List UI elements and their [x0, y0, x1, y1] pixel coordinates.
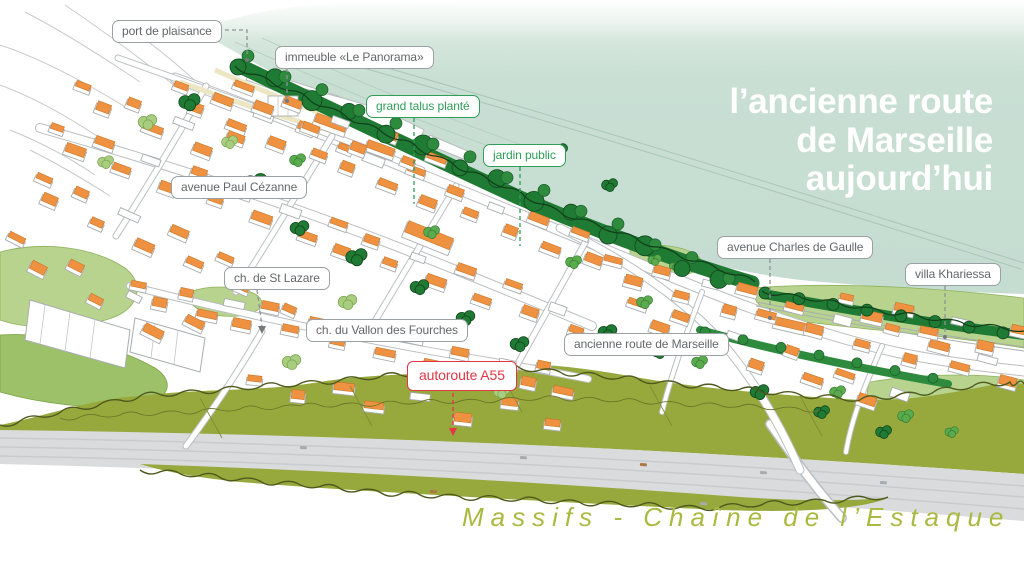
- label-ancienne-route-de-marseille: ancienne route de Marseille: [564, 333, 729, 356]
- title-line-2: de Marseille: [729, 122, 993, 161]
- label-grand-talus-plante: grand talus planté: [366, 95, 480, 118]
- label-port-de-plaisance: port de plaisance: [112, 20, 222, 43]
- label-ch-de-st-lazare: ch. de St Lazare: [224, 267, 330, 290]
- label-avenue-paul-cezanne: avenue Paul Cézanne: [171, 176, 307, 199]
- illustrated-map-page: port de plaisance immeuble «Le Panorama»…: [0, 0, 1024, 565]
- label-immeuble-le-panorama: immeuble «Le Panorama»: [275, 46, 434, 69]
- title-line-1: l’ancienne route: [729, 83, 993, 122]
- label-autoroute-a55: autoroute A55: [407, 361, 517, 391]
- label-avenue-charles-de-gaulle: avenue Charles de Gaulle: [717, 236, 873, 259]
- massifs-caption: Massifs - Chaîne de l’Estaque: [462, 502, 1010, 533]
- map-title: l’ancienne route de Marseille aujourd’hu…: [729, 83, 993, 199]
- title-line-3: aujourd’hui: [729, 160, 993, 199]
- label-jardin-public: jardin public: [483, 144, 566, 167]
- label-ch-du-vallon-des-fourches: ch. du Vallon des Fourches: [306, 319, 468, 342]
- label-villa-khariessa: villa Khariessa: [905, 263, 1001, 286]
